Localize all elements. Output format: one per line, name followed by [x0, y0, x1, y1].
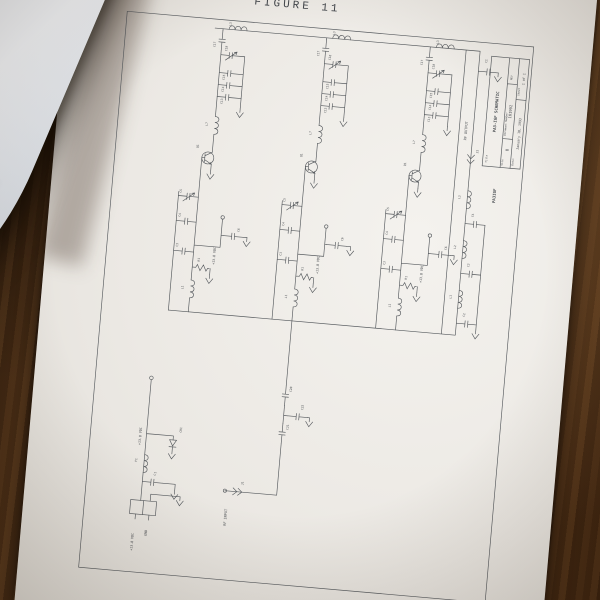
power-entry-circuit: +13.8 VDC CR1 F1 C1 +13.8 VDC GND	[126, 375, 194, 555]
schematic-page: FIGURE 11	[14, 0, 598, 600]
date-value: January 18, 1993	[516, 118, 523, 150]
capacitor-label: C3	[466, 263, 470, 267]
inductor-label: L3	[457, 195, 461, 199]
capacitor-label: C21	[285, 424, 289, 430]
capacitor-label: C4	[471, 213, 475, 217]
schematic-drawing: L1 C3 C4 C5 R1 +13.8 VDC C6 Q1 L7 C13 C1…	[78, 10, 535, 600]
capacitor-label: C20	[289, 386, 293, 392]
sheet-label: Sheet	[516, 87, 521, 96]
terminal-plus-label: +13.8 VDC	[129, 533, 135, 551]
schematic-title: PA3-IGF SCHEMATIC	[492, 91, 501, 133]
rf-input-circuit: RF INPUT J1 C21 C20 C22	[220, 316, 321, 532]
supply-net-label: +13.8 VDC	[138, 427, 144, 445]
amplifier-stage-3	[376, 37, 477, 335]
rev-label: REV	[509, 75, 513, 80]
diode-label: CR1	[179, 427, 183, 433]
inductor-label: L2	[453, 245, 457, 249]
photo-of-schematic-page: FIGURE 11	[0, 0, 600, 600]
capacitor-label: C2	[462, 313, 466, 317]
size-label: Size	[500, 159, 505, 166]
fuse-label: F1	[134, 458, 138, 462]
terminal-gnd-label: GND	[144, 530, 149, 536]
sheet-value: 1 of 1	[521, 73, 526, 85]
amplifier-stage-2	[272, 28, 373, 326]
inductor-label: L1	[448, 295, 452, 299]
document-number: 101992	[507, 105, 513, 119]
signal-rails	[168, 26, 480, 335]
connector-label: J2	[475, 149, 479, 153]
capacitor-label: C1	[484, 59, 488, 63]
amplifier-stage-1	[168, 19, 269, 317]
capacitor-label: C1	[153, 472, 157, 476]
rf-output-label: RF OUTPUT	[463, 120, 469, 140]
callsign-note: PA3IGF	[491, 188, 497, 203]
title-label: Title	[484, 154, 489, 163]
connector-label: J1	[240, 481, 244, 485]
drawing-frame-border	[79, 11, 534, 600]
rf-input-label: RF INPUT	[223, 508, 229, 526]
date-label: Date:	[510, 158, 515, 166]
capacitor-label: C22	[300, 404, 304, 410]
size-value: B	[504, 148, 509, 151]
